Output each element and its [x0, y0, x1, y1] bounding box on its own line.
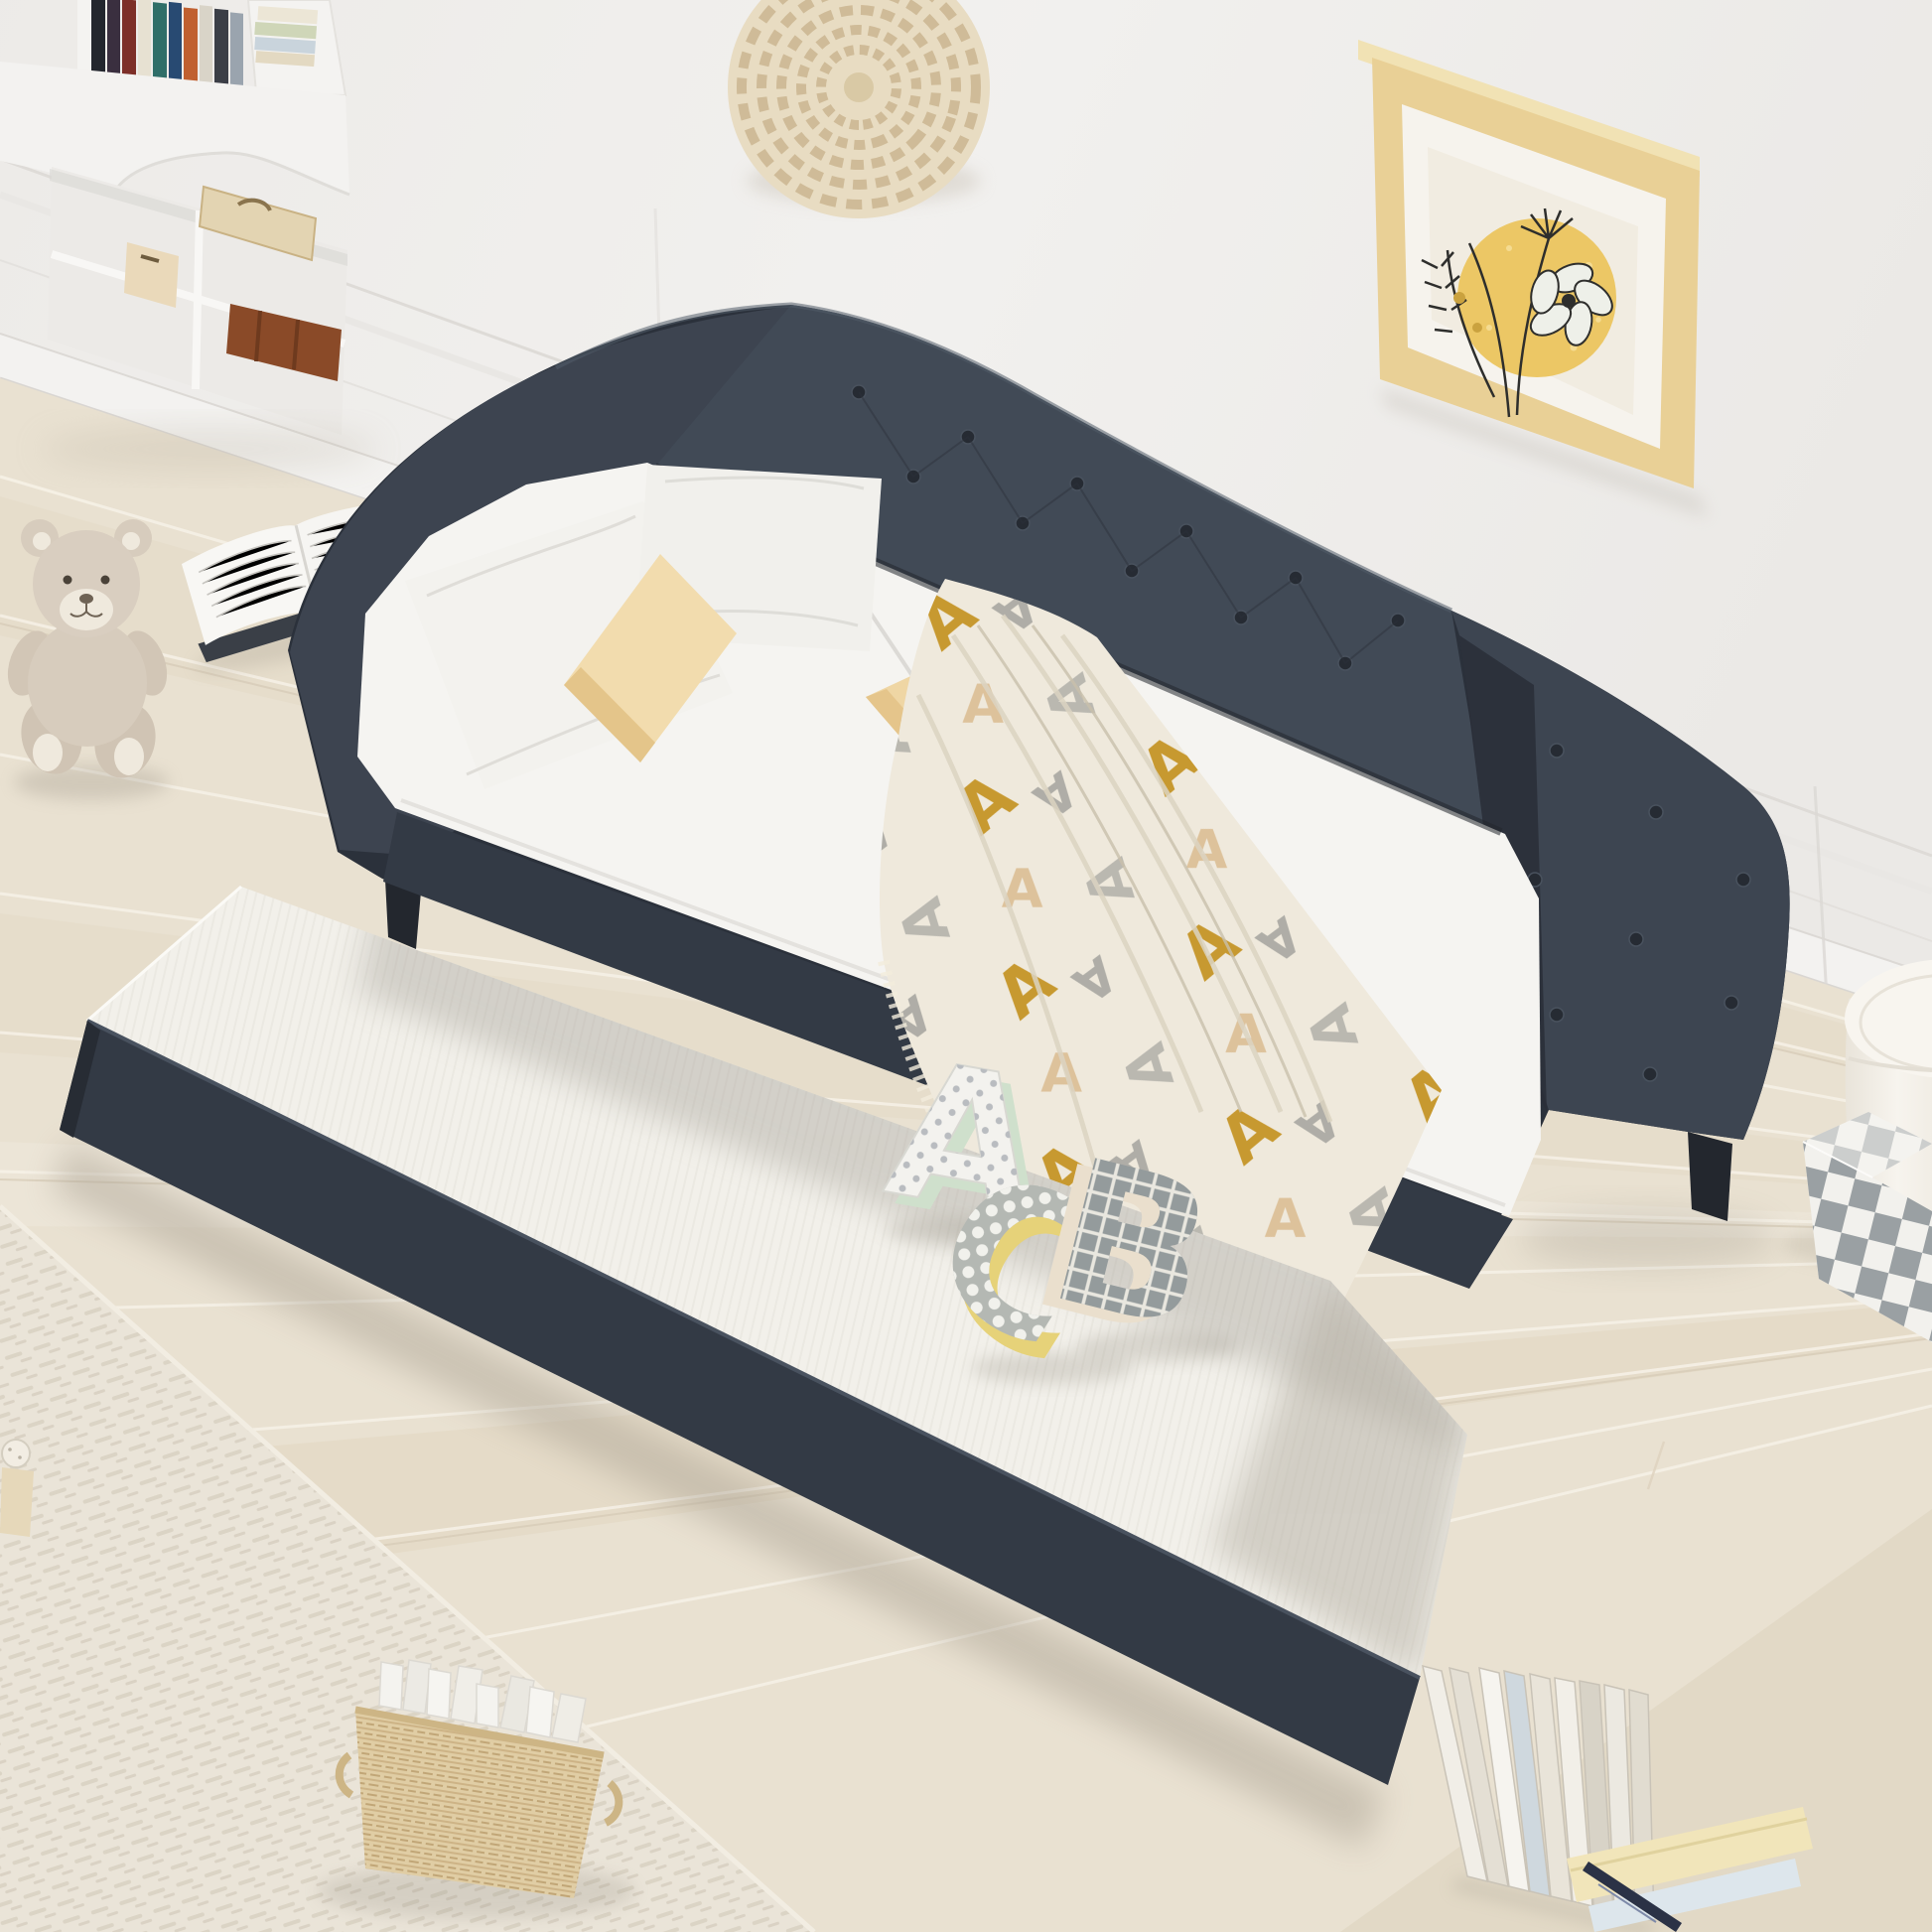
desk-shadow	[40, 427, 377, 471]
bear-eye-right	[101, 576, 110, 585]
bear-footpad-right	[114, 738, 144, 775]
doll-body	[0, 1467, 34, 1537]
wall-decor-rattan	[728, 0, 990, 218]
bear-body	[28, 620, 147, 747]
doll-head	[2, 1440, 30, 1467]
bear-nose	[79, 594, 93, 604]
bear-shadow	[14, 764, 169, 800]
bear-eye-left	[64, 576, 72, 585]
daybed-floor-shadow	[1519, 1209, 1777, 1269]
bear-footpad-left	[33, 734, 63, 771]
knit-doll	[0, 1440, 34, 1537]
daybed-leg-right	[1688, 1132, 1732, 1221]
cubby-divider	[196, 210, 200, 389]
room-photo: A A A A	[0, 0, 1932, 1932]
rattan-center	[844, 72, 874, 102]
